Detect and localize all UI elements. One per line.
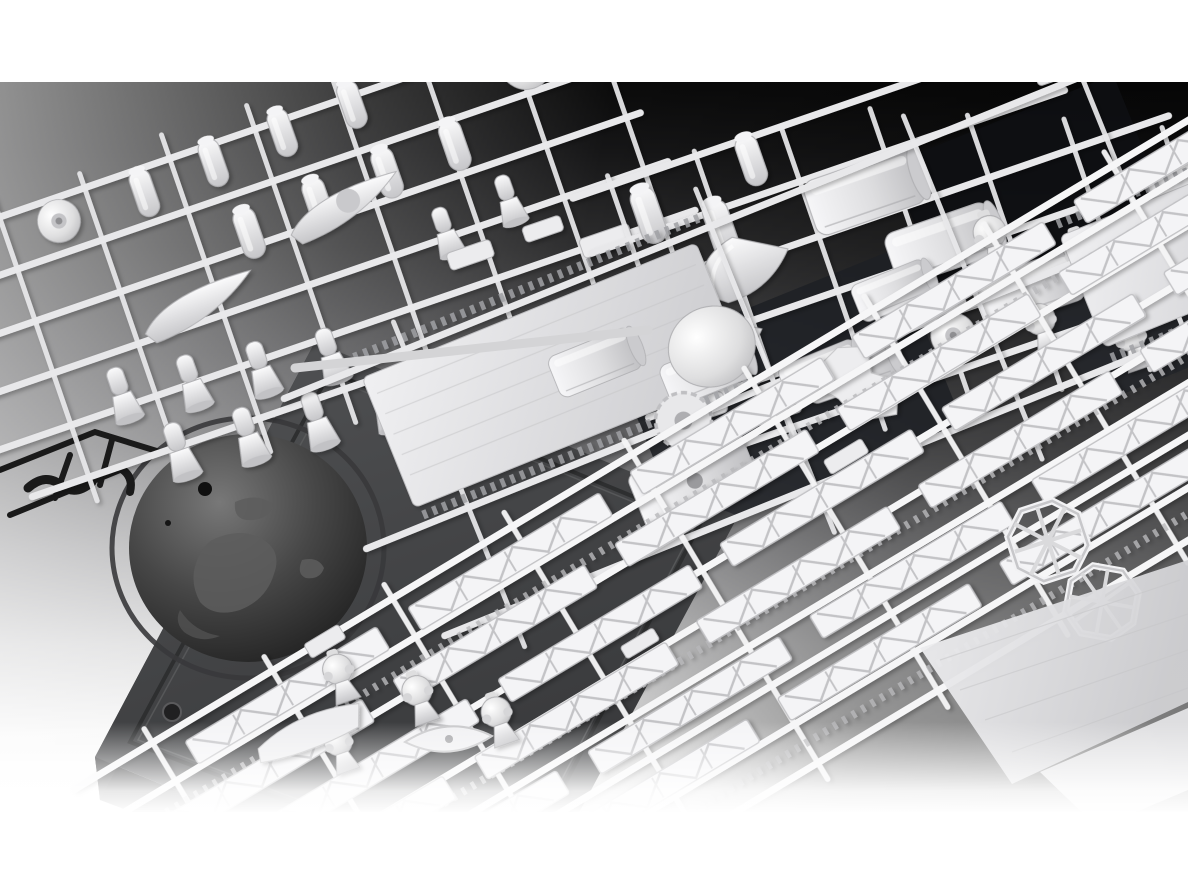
base-screw-hole	[163, 703, 181, 721]
tank-part	[263, 103, 300, 159]
top-white-margin	[0, 0, 1188, 82]
dome-mount-hole	[198, 482, 212, 496]
model-kit-illustration	[0, 82, 1188, 812]
tank-part	[731, 129, 771, 189]
dome-pin-hole	[165, 520, 171, 526]
engine-bell-part	[99, 363, 146, 428]
bottom-white-margin	[0, 812, 1188, 891]
photo-area	[0, 82, 1188, 812]
product-photo-canvas	[0, 0, 1188, 891]
black-runner	[10, 440, 120, 515]
bottom-light-fade	[0, 722, 1188, 812]
tank-part	[125, 163, 162, 219]
tank-part	[434, 113, 474, 173]
engine-bell-part	[168, 351, 215, 416]
